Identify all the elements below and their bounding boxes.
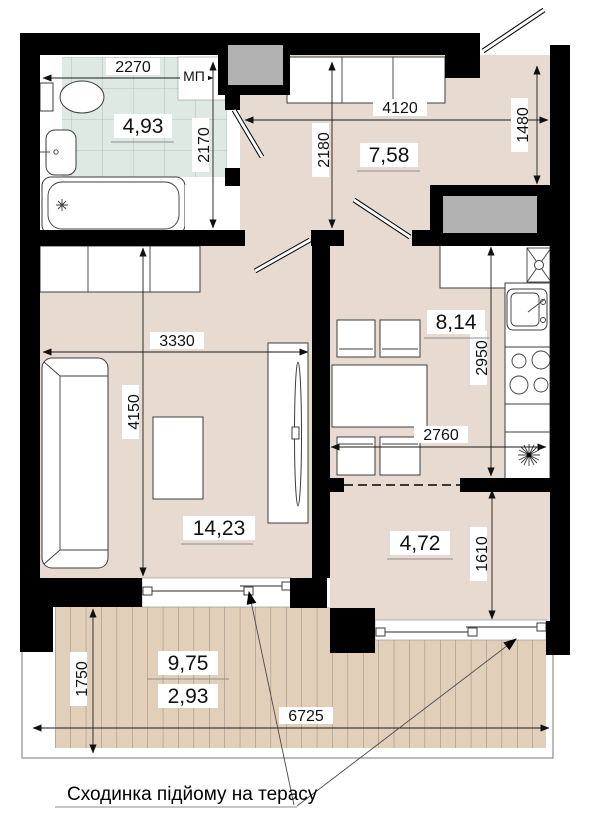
coffee-table: [153, 417, 203, 499]
bathroom-area-label: 4,93: [123, 115, 164, 138]
terrace-step-note: Сходинка підйому на терасу: [67, 784, 318, 805]
kitchen-chair-1: [337, 320, 375, 357]
door-handle: [143, 587, 152, 595]
dim-living-height: 4150: [126, 394, 143, 430]
hall-wardrobe: [287, 57, 445, 103]
bathtub-icon: [42, 177, 185, 234]
living-area-label: 14,23: [193, 517, 246, 540]
door-handle: [282, 582, 291, 590]
bath-niche: [185, 185, 240, 230]
dim-terrace-depth: 1750: [74, 661, 91, 697]
kitchen-counter-top: [440, 240, 550, 288]
niche-terrace-sill: [375, 620, 546, 640]
toilet-icon: [60, 81, 104, 113]
dim-entry-depth: 1480: [515, 107, 532, 143]
terrace-area-full-label: 9,75: [168, 652, 209, 675]
door-handle: [537, 623, 546, 631]
dim-living-width: 3330: [159, 333, 195, 350]
dim-terrace-width: 6725: [288, 708, 324, 725]
kitchen-chair-2: [380, 320, 420, 357]
dim-bathroom-height: 2170: [196, 127, 213, 163]
dim-hallway-width: 4120: [382, 100, 418, 117]
terrace-area-reduced-label: 2,93: [168, 685, 209, 708]
floor-plan: 2270 МП 2170 4120 2180 1480 3330 4150 29…: [0, 0, 600, 815]
kitchen-sink-icon: [507, 289, 547, 330]
door-handle: [244, 587, 253, 595]
washbasin-icon: [46, 130, 76, 175]
floor-plan-page: 2270 МП 2170 4120 2180 1480 3330 4150 29…: [0, 0, 600, 815]
window-marker-label: МП: [183, 68, 205, 84]
sofa-icon: [42, 358, 108, 568]
dim-kitchen-width: 2760: [423, 427, 459, 444]
tv-mount: [292, 427, 299, 439]
hallway-area-label: 7,58: [369, 144, 410, 167]
duct-shaft-top: [228, 45, 283, 85]
kitchen-area-label: 8,14: [436, 311, 477, 334]
dim-niche-height: 1610: [474, 536, 491, 572]
vent-shaft-circle: [535, 261, 544, 270]
door-handle: [376, 628, 385, 636]
dim-hallway-height: 2180: [316, 132, 333, 168]
living-wardrobe: [40, 246, 200, 292]
dim-kitchen-height: 2950: [474, 340, 491, 376]
toilet-cistern: [40, 83, 53, 111]
kitchen-chair-3: [337, 437, 375, 475]
duct-shaft-right: [443, 196, 537, 233]
entrance-door-leaf: [483, 10, 544, 51]
niche-area-label: 4,72: [400, 532, 441, 555]
living-terrace-sill: [142, 578, 292, 607]
door-handle: [468, 628, 477, 636]
kitchen-table: [332, 365, 427, 427]
dim-bathroom-width: 2270: [115, 59, 151, 76]
